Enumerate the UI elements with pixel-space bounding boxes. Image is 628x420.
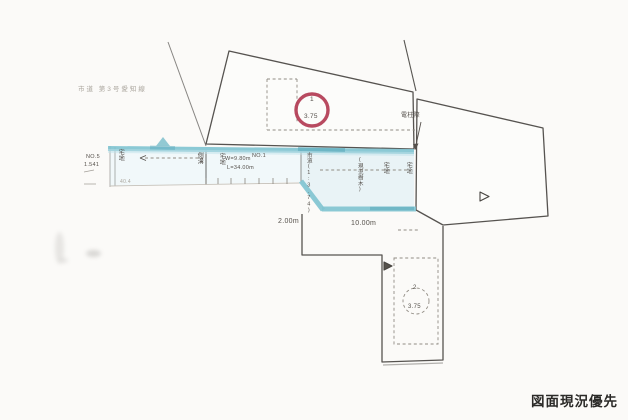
triangle-marker-lower-parcel bbox=[384, 262, 392, 270]
road-col-left: 宅地 bbox=[117, 149, 123, 162]
road-width-label: W=9.80m bbox=[225, 156, 251, 162]
dimension-left-offset: 2.00m bbox=[278, 218, 299, 225]
scanned-site-plan: 市道 第3号愛知線 1 3.75 電柱際 NO.5 1.541 40.4 宅地 … bbox=[0, 0, 628, 420]
road-col-gutter: 側溝 bbox=[196, 152, 202, 165]
spot-elevation: 40.4 bbox=[120, 179, 131, 185]
road-col-r2: 宅地 bbox=[405, 162, 411, 175]
upper-right-stub bbox=[404, 40, 416, 91]
road-col-mid: 宅地 bbox=[218, 153, 224, 166]
road-length-label: L=34.00m bbox=[227, 165, 254, 171]
drawing-priority-stamp: 図面現況優先 bbox=[531, 390, 618, 410]
lot2-number: 2 bbox=[413, 285, 417, 291]
lot1-number: 1 bbox=[310, 96, 314, 103]
scan-smudge bbox=[86, 250, 101, 257]
scan-smudge bbox=[60, 258, 68, 263]
road-col-r1: 宅地 bbox=[382, 162, 388, 175]
lower-parcel bbox=[302, 214, 443, 362]
lot1-area: 3.75 bbox=[304, 113, 318, 120]
survey-point-no5: NO.5 bbox=[86, 154, 100, 160]
right-parcel bbox=[416, 99, 548, 225]
pole-label: 電柱際 bbox=[401, 110, 420, 119]
benchmark-value: 1.541 bbox=[84, 162, 99, 168]
lot2-dashed-circle bbox=[403, 288, 429, 314]
site-plan-linework bbox=[0, 0, 628, 420]
road-col-scale: 市道(1:3.74) bbox=[305, 152, 311, 214]
lower-parcel-dashed-rect bbox=[394, 258, 438, 344]
highlight-overshoot bbox=[156, 137, 170, 146]
lot2-area: 3.75 bbox=[408, 304, 421, 310]
left-diagonal bbox=[168, 42, 206, 146]
survey-point-no1: NO.1 bbox=[252, 153, 266, 159]
road-col-note: (現況樹木) bbox=[356, 157, 362, 193]
dimension-frontage: 10.00m bbox=[351, 220, 376, 227]
road-name-note: 市道 第3号愛知線 bbox=[78, 83, 147, 93]
